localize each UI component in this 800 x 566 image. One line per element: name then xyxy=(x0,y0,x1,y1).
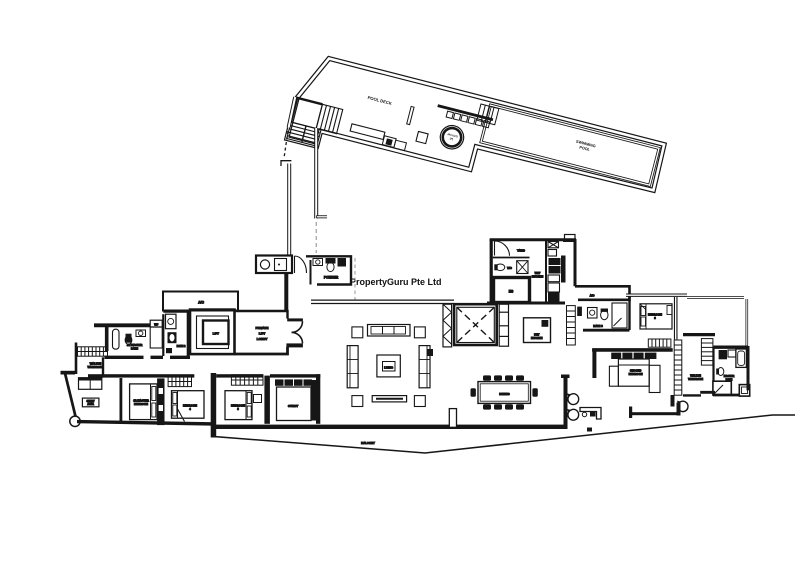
svg-text:AREA: AREA xyxy=(87,403,94,406)
svg-text:LIFT: LIFT xyxy=(213,332,219,336)
svg-text:BEDROOM: BEDROOM xyxy=(629,372,644,376)
svg-text:KITCHEN: KITCHEN xyxy=(531,336,543,340)
svg-text:LIVING: LIVING xyxy=(384,365,393,369)
svg-text:WC: WC xyxy=(507,266,512,270)
svg-text:LOBBY: LOBBY xyxy=(257,337,269,341)
svg-text:WET: WET xyxy=(535,271,541,275)
svg-text:BEDROOM: BEDROOM xyxy=(231,404,246,408)
svg-text:PropertyGuru Pte Ltd: PropertyGuru Pte Ltd xyxy=(350,277,442,287)
svg-text:PRIVATE: PRIVATE xyxy=(256,326,269,330)
svg-text:DRY: DRY xyxy=(534,333,540,337)
svg-text:A/C: A/C xyxy=(590,294,595,298)
svg-text:SECOND: SECOND xyxy=(630,368,642,372)
svg-text:YARD: YARD xyxy=(517,249,525,253)
svg-text:BATH 2: BATH 2 xyxy=(177,345,186,348)
svg-text:BALCONY: BALCONY xyxy=(361,441,375,445)
svg-text:A/C: A/C xyxy=(198,301,204,305)
svg-text:KITCHEN: KITCHEN xyxy=(532,275,544,279)
svg-text:BEDROOM: BEDROOM xyxy=(134,402,149,406)
svg-text:HS: HS xyxy=(509,290,513,294)
svg-text:BEDROOM: BEDROOM xyxy=(648,313,663,317)
svg-text:POWDER: POWDER xyxy=(324,276,339,280)
svg-text:GUEST: GUEST xyxy=(288,404,299,408)
svg-text:WARDROBE: WARDROBE xyxy=(688,378,703,381)
svg-text:BEDROOM: BEDROOM xyxy=(183,404,198,408)
svg-text:LIFT: LIFT xyxy=(259,332,266,336)
svg-text:WF: WF xyxy=(154,323,158,326)
svg-text:DINING: DINING xyxy=(499,392,510,396)
svg-text:BATH 3: BATH 3 xyxy=(593,324,603,328)
svg-text:JR MASTER: JR MASTER xyxy=(127,343,143,347)
svg-text:WARDROBE: WARDROBE xyxy=(88,365,104,369)
svg-text:WALK-IN: WALK-IN xyxy=(90,362,102,366)
svg-text:BATH: BATH xyxy=(131,347,138,351)
svg-text:JR MASTER: JR MASTER xyxy=(133,398,149,402)
